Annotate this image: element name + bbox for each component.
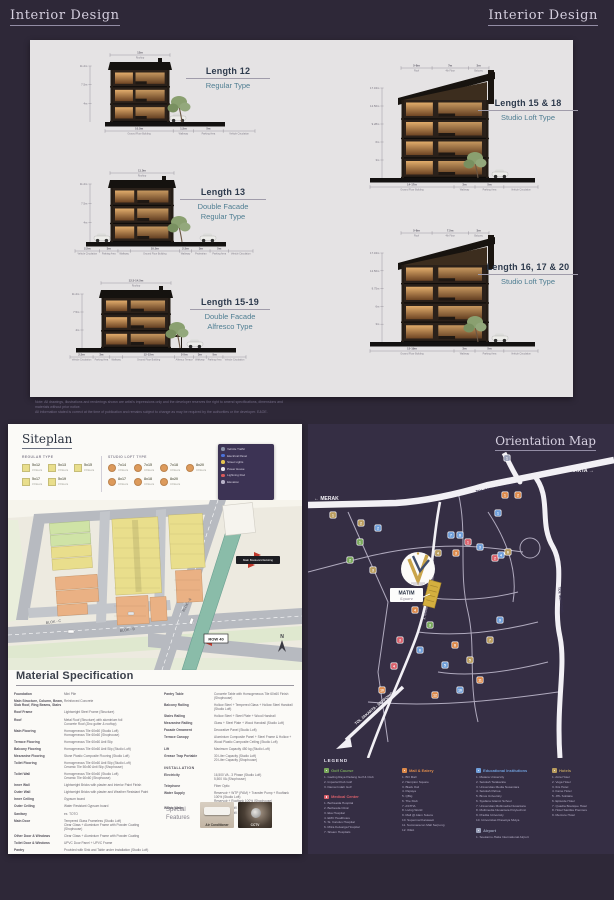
svg-text:3m: 3m [462, 183, 467, 187]
svg-text:7.5m: 7.5m [81, 201, 88, 205]
svg-text:11: 11 [478, 678, 482, 682]
key-row: Street Lights [221, 460, 271, 464]
building-cross-section [370, 70, 535, 183]
spec-value: Homogeneous Tile 60x60 Anti Slip (Studio… [64, 747, 156, 751]
legend-group-name: Mall & Eatery [409, 768, 433, 773]
svg-text:7: 7 [489, 638, 491, 642]
map-pin: 2 [515, 492, 521, 498]
spec-value: UPVC Door Panel + UPVC Frame [64, 841, 156, 845]
legend-group-name: Medical Center [331, 794, 359, 799]
svg-text:Vehicle Circulation: Vehicle Circulation [225, 359, 245, 362]
spec-label: Terrace Canopy [164, 735, 214, 743]
legend-group-header: Medical Center [324, 794, 374, 799]
material-spec-title: Material Specification [16, 670, 294, 686]
key-label: Lightning Rod [227, 473, 245, 477]
svg-text:Walkway: Walkway [460, 189, 470, 192]
spec-value: Tempered Glass Frameless (Studio Loft) C… [64, 819, 156, 831]
map-pin: 1 [330, 512, 336, 518]
spec-label: Stairs Railing [164, 714, 214, 718]
spec-label: Sanitary [14, 812, 64, 816]
svg-text:2.5m: 2.5m [78, 353, 85, 357]
svg-text:1: 1 [506, 456, 508, 460]
svg-text:Vehicle Circulation: Vehicle Circulation [511, 353, 531, 356]
svg-text:17.34m: 17.34m [370, 86, 380, 90]
unit-type-item: 8x204 Floors [186, 464, 206, 472]
dimension-line: 2.5mVehicle Circulation3mParking AreaWal… [75, 247, 253, 256]
map-pin: 4 [498, 552, 504, 558]
svg-text:Parking Area: Parking Area [212, 253, 226, 256]
row-40-label: ROW 40 [208, 636, 224, 641]
svg-text:2-5m: 2-5m [181, 353, 188, 357]
section-subtitle: Regular Type [186, 78, 270, 91]
map-pin: 6 [505, 549, 511, 555]
svg-text:12.56m: 12.56m [370, 104, 380, 108]
svg-text:Walkway: Walkway [111, 359, 121, 362]
map-pin: 8 [457, 532, 463, 538]
svg-text:9.75m: 9.75m [372, 287, 380, 291]
map-pin: 12 [432, 692, 438, 698]
spec-value: Metal Roof (Structure) with aluminium fo… [64, 718, 156, 726]
svg-text:Pedestrian: Pedestrian [195, 253, 207, 256]
legend-group-name: Golf Course [331, 768, 353, 773]
svg-text:Walkway: Walkway [119, 253, 129, 256]
height-dimensions: 11.2m7.5m4m [80, 64, 92, 122]
spec-label: Balcony Flooring [14, 747, 64, 751]
unit-swatch [186, 464, 194, 472]
section-title: Length 12 [186, 66, 270, 76]
spec-label: Toilet Wall [14, 772, 64, 780]
unit-text: 7x154 Floors [144, 464, 154, 472]
svg-text:3m: 3m [376, 322, 381, 326]
svg-text:4m: 4m [76, 328, 81, 332]
legend-group-hotels: Hotels1. Atria Hotel2. Vega Hotel3. Ibis… [552, 768, 587, 818]
map-pin: 2 [375, 525, 381, 531]
legend-group-educational-institutions: Educational Institutions1. Matana Univer… [476, 768, 529, 823]
spec-row: Main DoorTempered Glass Frameless (Studi… [14, 819, 156, 831]
unit-type-item: 5x133 Floors [48, 464, 68, 472]
svg-text:17.34m: 17.34m [370, 251, 380, 255]
unit-swatch [22, 464, 30, 472]
siteplan-title: Siteplan [22, 432, 72, 449]
svg-text:5: 5 [469, 658, 471, 662]
legend-item: 7. Siloam Hospitals [324, 830, 374, 835]
svg-text:2: 2 [517, 493, 519, 497]
unit-type-item: 7x154 Floors [134, 464, 154, 472]
dimension-line: 14-17mGround Floor Building3mWalkway5mPa… [370, 183, 538, 192]
cctv-photo: CCTV [238, 802, 272, 828]
spec-section-header: INSTALLATION [164, 766, 296, 770]
height-dimensions: 17.34m12.56m9.75m6m3m [370, 251, 384, 342]
svg-text:11.2m: 11.2m [80, 182, 88, 186]
spec-label: Outer Wall [14, 790, 64, 794]
map-pin: 9 [497, 617, 503, 623]
svg-text:1: 1 [467, 540, 469, 544]
svg-text:3m: 3m [99, 353, 104, 357]
svg-text:Rooftop: Rooftop [138, 175, 147, 178]
svg-text:3m: 3m [477, 229, 482, 233]
legend-column: Mall & Eatery1. BO Mall2. Hampton Square… [402, 768, 444, 837]
cctv-caption: CCTV [238, 823, 272, 827]
svg-text:4: 4 [500, 553, 502, 557]
car-illustration [187, 340, 203, 349]
svg-text:4th Floor: 4th Floor [445, 70, 455, 73]
svg-text:Parking Area: Parking Area [202, 133, 216, 136]
spec-value: Mini Pile [64, 692, 156, 696]
height-dimensions: 11.2m7.5m4m [72, 292, 84, 348]
unit-type-item: 7x144 Floors [108, 464, 128, 472]
svg-text:6: 6 [507, 550, 509, 554]
svg-text:12: 12 [433, 693, 437, 697]
car-illustration [200, 234, 216, 243]
dimension-line: 5-8mRoof7.5m4th Floor3mBalcony [401, 229, 489, 238]
special-features: Special Features Air Conditioner CCTV [166, 802, 272, 828]
unit-text: 5x173 Floors [32, 478, 42, 486]
siteplan-map: Main Boulevard Existing ROW 40 BLOK - C … [8, 500, 302, 670]
legend-group-icon [476, 828, 481, 833]
svg-text:5m: 5m [206, 127, 211, 131]
svg-text:12.5-14.5m: 12.5-14.5m [129, 279, 144, 283]
spec-value: Provided with Sink and Table under Insta… [64, 848, 156, 852]
svg-text:Ground Floor Building: Ground Floor Building [137, 359, 161, 362]
studio-loft-type-label: STUDIO LOFT TYPE [108, 455, 147, 459]
unit-type-item: 5x193 Floors [48, 478, 68, 486]
spec-value: Concrete Table with Homogeneous Tile 60x… [214, 692, 296, 700]
section-length-12: 12mRooftop11.2m7.5m4m10.5mGround Floor B… [80, 51, 255, 136]
legend-item: 11. Summarecon Mall Serpong [402, 823, 444, 828]
spec-label: Roof Frame [14, 710, 64, 714]
svg-text:3: 3 [455, 551, 457, 555]
legend-title: LEGEND [324, 758, 348, 763]
spec-value: Clear Glass + Aluminium Frame with Powde… [64, 834, 156, 838]
spec-value: Fiber Optic [214, 784, 296, 788]
key-row: Power House [221, 467, 271, 471]
svg-text:1.5m: 1.5m [180, 127, 187, 131]
svg-text:3m: 3m [462, 347, 467, 351]
unit-type-item: 5x153 Floors [74, 464, 94, 472]
map-pin: 11 [477, 677, 483, 683]
spec-row: Balcony FlooringHomogeneous Tile 60x60 A… [14, 747, 156, 751]
svg-text:2: 2 [494, 556, 496, 560]
height-dimensions: 17.34m12.56m9.28m6m3m [370, 86, 384, 178]
svg-text:1: 1 [497, 511, 499, 515]
key-row: Lightning Rod [221, 473, 271, 477]
legend-item: 10. Universitas Prasetiya Mulya [476, 818, 529, 823]
legend-group-header: Hotels [552, 768, 587, 773]
svg-text:6m: 6m [376, 304, 381, 308]
svg-text:Walkway: Walkway [460, 353, 470, 356]
spec-value: 16,500 VA - 3 Phase (Studio Loft) 5,500 … [214, 773, 296, 781]
svg-text:3: 3 [399, 638, 401, 642]
svg-text:10.5m: 10.5m [135, 127, 144, 131]
map-pin: 2 [492, 555, 498, 561]
unit-swatch [134, 464, 142, 472]
map-pin: 1 [465, 539, 471, 545]
legend-group-name: Educational Institutions [483, 768, 527, 773]
spec-value: ex. TOTO [64, 812, 156, 816]
unit-text: 7x184 Floors [170, 464, 180, 472]
page-title-right: Interior Design [488, 8, 598, 26]
map-pin: 3 [427, 622, 433, 628]
svg-text:Walkway: Walkway [195, 359, 205, 362]
svg-text:7.5m: 7.5m [447, 229, 454, 233]
svg-text:1: 1 [504, 493, 506, 497]
map-pin: 5 [467, 657, 473, 663]
spec-row: LiftMaximum Capacity 450 kg (Studio Loft… [164, 747, 296, 751]
map-pin: 4 [391, 663, 397, 669]
svg-text:12-15m: 12-15m [144, 353, 154, 357]
brochure-page: Interior Design Interior Design 12mRooft… [0, 0, 614, 900]
svg-text:1: 1 [332, 513, 334, 517]
key-icon [221, 480, 225, 484]
spec-label: Main Structure, Column, Beam, Slab Roof,… [14, 699, 64, 708]
spec-column-right: Pantry TableConcrete Table with Homogene… [164, 692, 296, 818]
svg-text:Parking Area: Parking Area [208, 359, 222, 362]
spec-row: Terrace CanopyAluminium Composite Panel … [164, 735, 296, 743]
map-pin: 4 [412, 607, 418, 613]
svg-text:3m: 3m [198, 353, 203, 357]
svg-text:5m: 5m [212, 353, 217, 357]
svg-text:5: 5 [444, 663, 446, 667]
key-icon [221, 447, 225, 451]
svg-text:9: 9 [499, 618, 501, 622]
spec-label: Pantry Table [164, 692, 214, 700]
map-pin: 1 [502, 492, 508, 498]
svg-text:5m: 5m [217, 247, 222, 251]
unit-text: 5x123 Floors [32, 464, 42, 472]
svg-text:4: 4 [437, 551, 439, 555]
map-pin: 10 [379, 687, 385, 693]
unit-text: 5x133 Floors [58, 464, 68, 472]
legend-item: 1. Soekarno-Hatta International Airport [476, 835, 529, 840]
legend-column: Hotels1. Atria Hotel2. Vega Hotel3. Ibis… [552, 768, 587, 823]
section-title: Length 16, 17 & 20 [478, 262, 578, 272]
svg-text:15-19m: 15-19m [407, 347, 417, 351]
svg-text:Ground Floor Building: Ground Floor Building [400, 189, 424, 192]
svg-text:5-8m: 5-8m [413, 64, 420, 68]
legend-group-mall-eatery: Mall & Eatery1. BO Mall2. Hampton Square… [402, 768, 444, 832]
map-pin: 2 [347, 557, 353, 563]
spec-label: Electricity [164, 773, 214, 781]
section-title: Length 15-19 [190, 297, 270, 307]
building-cross-section [370, 235, 535, 347]
unit-type-item: 8x204 Floors [160, 478, 180, 486]
car-illustration [492, 334, 508, 343]
legend-group-airport: Airport1. Soekarno-Hatta International A… [476, 828, 529, 840]
orientation-map-panel: Orientation Map ← MERAK JAKARTA → TOL JA… [308, 424, 614, 854]
svg-text:Vehicle Circulation: Vehicle Circulation [72, 359, 92, 362]
map-pin: 3 [397, 637, 403, 643]
dimension-line: 2.5mVehicle Circulation3mParking AreaWal… [70, 353, 246, 362]
map-pin: 5 [442, 662, 448, 668]
spec-row: Terrace FlooringHomogeneous Tile 60x60 A… [14, 740, 156, 744]
unit-type-item: 8x184 Floors [134, 478, 154, 486]
spec-label: Other Door & Windows [14, 834, 64, 838]
legend-item: 9. Mercure Hotel [552, 813, 587, 818]
map-pin: 3 [453, 550, 459, 556]
svg-text:5m: 5m [487, 347, 492, 351]
svg-text:7m: 7m [448, 64, 453, 68]
key-label: Street Lights [227, 460, 243, 464]
key-row: Electrical Panel [221, 454, 271, 458]
svg-text:Parking Area: Parking Area [102, 253, 116, 256]
svg-text:Rooftop: Rooftop [132, 285, 141, 288]
north-label: N [280, 634, 284, 640]
special-features-label: Special Features [166, 807, 196, 823]
svg-text:5m: 5m [487, 183, 492, 187]
svg-text:6m: 6m [376, 140, 381, 144]
unit-swatch [160, 478, 168, 486]
spec-column-left: FoundationMini PileMain Structure, Colum… [14, 692, 156, 855]
svg-text:3: 3 [429, 623, 431, 627]
spec-row: Stairs RailingHollow Steel + Steel Plate… [164, 714, 296, 718]
svg-text:Walkway: Walkway [179, 133, 189, 136]
legend-column: Golf Course1. Gading Raya Padang Golf & … [324, 768, 374, 840]
key-label: Vehicle Traffic [227, 447, 245, 451]
ac-unit-shape [204, 807, 230, 815]
svg-text:11.2m: 11.2m [80, 64, 88, 68]
spec-value: Lightweight Bricks with plaster and Inte… [64, 783, 156, 787]
svg-text:4m: 4m [84, 221, 89, 225]
svg-text:4: 4 [414, 608, 416, 612]
regular-type-label: REGULAR TYPE [22, 455, 53, 459]
unit-swatch [108, 478, 116, 486]
svg-text:Parking Area: Parking Area [483, 189, 497, 192]
svg-text:11.5m: 11.5m [138, 169, 146, 173]
svg-text:2.5m: 2.5m [182, 247, 189, 251]
svg-text:4th Floor: 4th Floor [445, 235, 455, 238]
spec-row: Mezzanine FlooringStone Plastic Composit… [14, 754, 156, 758]
spec-value: Aluminium Composite Panel + Steel Frame … [214, 735, 296, 743]
spec-value: Reinforced Concrete [64, 699, 156, 708]
orientation-map: ← MERAK JAKARTA → TOL JAKARTA - MERAK TO… [308, 452, 614, 758]
spec-label: Toilet Door & Windows [14, 841, 64, 845]
key-label: Electrical Panel [227, 454, 247, 458]
key-row: Elevation [221, 480, 271, 484]
merak-label: ← MERAK [314, 496, 339, 502]
svg-text:Walkway: Walkway [181, 253, 191, 256]
spec-label: Mezzanine Flooring [14, 754, 64, 758]
spec-label: Inner Wall [14, 783, 64, 787]
svg-text:8: 8 [454, 643, 456, 647]
svg-text:10: 10 [380, 688, 384, 692]
section-subtitle: Studio Loft Type [478, 110, 578, 123]
spec-row: Inner WallLightweight Bricks with plaste… [14, 783, 156, 787]
ac-caption: Air Conditioner [200, 823, 234, 827]
height-dimensions: 11.2m7.5m4m [80, 182, 92, 242]
key-icon [221, 454, 225, 458]
car-illustration [94, 234, 110, 243]
spec-value: Glass + Steel Plate + Wood Handrail (Stu… [214, 721, 296, 725]
section-length-15-18: 5-8mRoof7m4th Floor3mBalcony17.34m12.56m… [370, 64, 538, 192]
map-pin: 4 [435, 550, 441, 556]
svg-text:11.2m: 11.2m [72, 292, 80, 296]
map-pin: 1 [495, 510, 501, 516]
spec-label: Foundation [14, 692, 64, 696]
spec-row: RoofMetal Roof (Structure) with aluminiu… [14, 718, 156, 726]
svg-text:3m: 3m [107, 247, 112, 251]
legend-group-medical-center: Medical Center1. Bethsaida Hospital2. Be… [324, 794, 374, 834]
map-pin: 8 [452, 642, 458, 648]
cctv-dome-shape [251, 808, 261, 818]
spec-value: 30 Liter Capacity (Studio Loft) 20 Liter… [214, 754, 296, 762]
legend-group-header: Mall & Eatery [402, 768, 444, 773]
section-title: Length 13 [180, 187, 266, 197]
svg-text:Vehicle Circulation: Vehicle Circulation [231, 253, 251, 256]
section-subtitle: Studio Loft Type [478, 274, 578, 287]
svg-text:Balcony: Balcony [474, 70, 483, 73]
svg-text:1: 1 [359, 540, 361, 544]
section-label-length-16-17-20: Length 16, 17 & 20Studio Loft Type [478, 262, 578, 287]
building-sections-illustration: 12mRooftop11.2m7.5m4m10.5mGround Floor B… [30, 40, 573, 397]
svg-text:Rooftop: Rooftop [136, 57, 145, 60]
spec-row: Mezzanine RailingGlass + Steel Plate + W… [164, 721, 296, 725]
key-icon [221, 467, 225, 471]
svg-text:14-17m: 14-17m [407, 183, 417, 187]
dimension-line: 10.5mGround Floor Building1.5mWalkway5mP… [105, 127, 255, 136]
spec-value: Hollow Steel + Tempered Glass + Hollow S… [214, 703, 296, 711]
spec-label: Main Door [14, 819, 64, 831]
legend-group-icon [324, 768, 329, 773]
svg-text:3m: 3m [376, 158, 381, 162]
spec-value: Lightweight Bricks with plaster and Weat… [64, 790, 156, 794]
svg-text:10.5m: 10.5m [151, 247, 160, 251]
legend-group-icon [402, 768, 407, 773]
unit-text: 7x144 Floors [118, 464, 128, 472]
site-name-label: MATIM [398, 591, 414, 597]
svg-text:12.56m: 12.56m [370, 269, 380, 273]
unit-type-item: 7x184 Floors [160, 464, 180, 472]
car-illustration [492, 170, 508, 179]
svg-text:7: 7 [450, 533, 452, 537]
unit-type-item: 8x174 Floors [108, 478, 128, 486]
map-pin: 1 [504, 455, 510, 461]
unit-swatch [108, 464, 116, 472]
map-pin: 10 [457, 687, 463, 693]
legend-group-name: Hotels [559, 768, 571, 773]
air-conditioner-photo: Air Conditioner [200, 802, 234, 828]
svg-text:3: 3 [479, 545, 481, 549]
spec-label: Pantry [14, 848, 64, 852]
map-pin: 7 [487, 637, 493, 643]
unit-text: 8x184 Floors [144, 478, 154, 486]
unit-swatch [48, 478, 56, 486]
svg-text:2: 2 [377, 526, 379, 530]
legend-group-icon [476, 768, 481, 773]
svg-text:7.5m: 7.5m [73, 310, 80, 314]
unit-type-item: 5x123 Floors [22, 464, 42, 472]
key-label: Elevation [227, 480, 239, 484]
spec-label: Mezzanine Railing [164, 721, 214, 725]
spec-row: Pantry TableConcrete Table with Homogene… [164, 692, 296, 700]
spec-row: FoundationMini Pile [14, 692, 156, 696]
disclaimer-text: Note: All drawings, illustrations and re… [35, 400, 285, 415]
spec-value: Homogeneous Tile 60x60 Anti Slip [64, 740, 156, 744]
key-label: Power House [227, 467, 244, 471]
spec-value: Maximum Capacity 450 kg (Studio Loft) [214, 747, 296, 751]
spec-value: Homogeneous Tile 60x60 Anti Slip (Studio… [64, 761, 156, 769]
spec-label: Grease Trap Portable [164, 754, 214, 762]
spec-value: Homogeneous Tile 60x60 (Studio Loft) Hom… [64, 729, 156, 737]
unit-swatch [74, 464, 82, 472]
legend-group-icon [324, 795, 329, 800]
spec-value: Hollow Steel + Steel Plate + Wood Handra… [214, 714, 296, 718]
map-pin: 2 [358, 520, 364, 526]
key-row: Vehicle Traffic [221, 447, 271, 451]
spec-label: Toilet Flooring [14, 761, 64, 769]
spec-row: Toilet FlooringHomogeneous Tile 60x60 An… [14, 761, 156, 769]
spec-row: Roof FrameLightweight Steel Frame (Struc… [14, 710, 156, 714]
siteplan-panel: Siteplan REGULAR TYPE STUDIO LOFT TYPE 5… [8, 424, 302, 854]
